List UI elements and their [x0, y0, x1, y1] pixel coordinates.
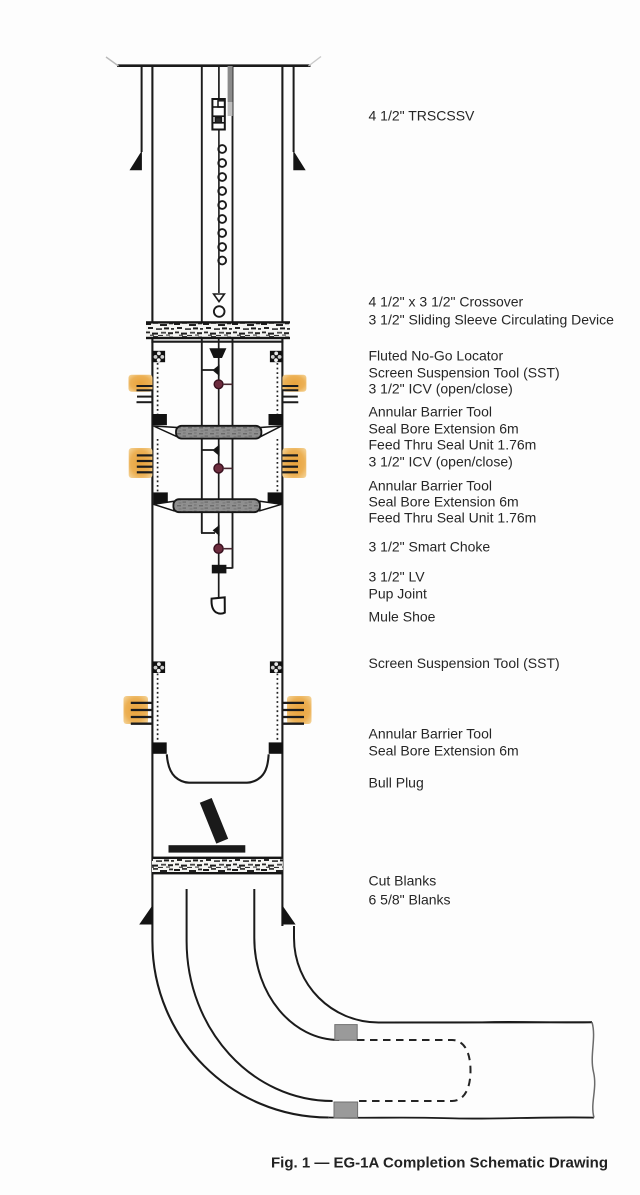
svg-text:Fig. 1 — EG-1A Completion Sche: Fig. 1 — EG-1A Completion Schematic Draw… [271, 1155, 608, 1172]
svg-text:Fluted No-Go Locator: Fluted No-Go Locator [369, 348, 504, 364]
svg-text:Screen Suspension Tool (SST): Screen Suspension Tool (SST) [369, 655, 560, 671]
svg-text:3 1/2" LV: 3 1/2" LV [369, 569, 426, 585]
svg-text:3 1/2" Smart Choke: 3 1/2" Smart Choke [369, 539, 491, 555]
svg-text:Mule Shoe: Mule Shoe [369, 609, 436, 625]
svg-text:Screen Suspension Tool (SST): Screen Suspension Tool (SST) [369, 365, 560, 381]
svg-text:4 1/2" x 3 1/2" Crossover: 4 1/2" x 3 1/2" Crossover [369, 294, 524, 310]
svg-text:6 5/8" Blanks: 6 5/8" Blanks [369, 892, 451, 908]
svg-text:Seal Bore Extension 6m: Seal Bore Extension 6m [369, 494, 519, 510]
svg-text:3 1/2" Sliding Sleeve Circulat: 3 1/2" Sliding Sleeve Circulating Device [369, 312, 615, 328]
svg-text:3 1/2" ICV (open/close): 3 1/2" ICV (open/close) [369, 454, 513, 470]
svg-text:Annular Barrier Tool: Annular Barrier Tool [369, 478, 492, 494]
svg-text:Feed Thru Seal Unit 1.76m: Feed Thru Seal Unit 1.76m [369, 437, 537, 453]
svg-text:Feed Thru Seal Unit 1.76m: Feed Thru Seal Unit 1.76m [369, 510, 537, 526]
svg-text:Annular Barrier Tool: Annular Barrier Tool [369, 404, 492, 420]
svg-text:4 1/2" TRSCSSV: 4 1/2" TRSCSSV [369, 108, 476, 124]
svg-text:Cut Blanks: Cut Blanks [369, 872, 437, 888]
svg-text:Pup Joint: Pup Joint [369, 586, 427, 602]
svg-text:Seal Bore Extension 6m: Seal Bore Extension 6m [369, 742, 519, 758]
svg-text:Seal Bore Extension 6m: Seal Bore Extension 6m [369, 421, 519, 437]
svg-text:Annular Barrier Tool: Annular Barrier Tool [369, 726, 492, 742]
svg-text:Bull Plug: Bull Plug [369, 774, 424, 790]
svg-text:3 1/2" ICV (open/close): 3 1/2" ICV (open/close) [369, 381, 513, 397]
